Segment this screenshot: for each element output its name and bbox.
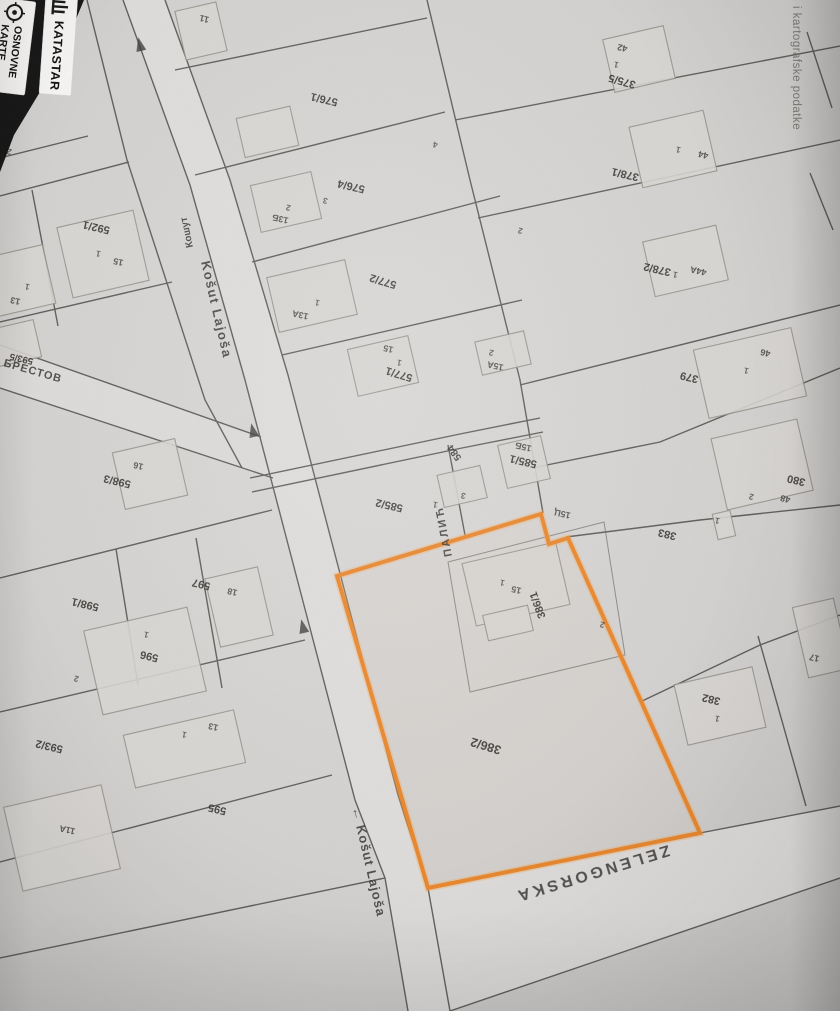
cadastral-map-photo: 592/1 593/5 598/3 597 598/1 596 593/2 59… xyxy=(0,0,840,1011)
attribution-text: i kartografske podatke xyxy=(790,6,802,130)
map-canvas: 592/1 593/5 598/3 597 598/1 596 593/2 59… xyxy=(0,0,840,1011)
